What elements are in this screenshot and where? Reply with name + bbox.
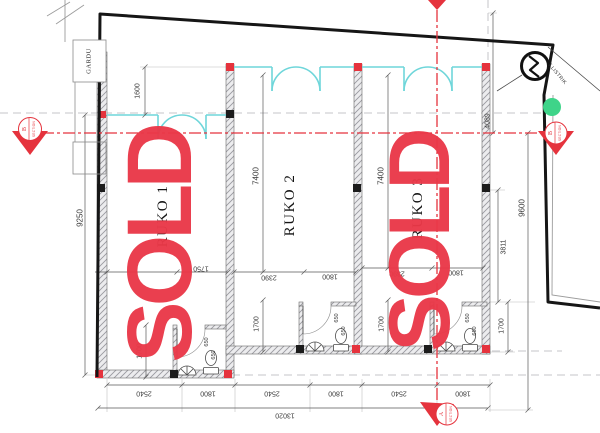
dim-right-top: 4089	[485, 113, 492, 129]
section-marker-b-left: B SECTION	[12, 118, 48, 156]
dim-fixture: 650	[334, 313, 340, 322]
sold-stamp-ruko1: SOLD	[109, 126, 211, 363]
gardu-label: GARDU	[86, 48, 93, 74]
dim-total-width: 13020	[275, 412, 295, 419]
dim-site-left: 9250	[76, 209, 85, 227]
label-ruko-2: RUKO 2	[282, 174, 298, 237]
electric-pole-label: T.LISTRIK	[546, 62, 568, 86]
dim-fixture: 650	[341, 326, 347, 335]
section-word: SECTION	[32, 120, 36, 137]
dim-storefront-offset: 1600	[135, 83, 142, 99]
section-marker-a-top	[428, 0, 446, 10]
dim-right-full: 9600	[518, 199, 527, 217]
floor-plan-screenshot: 9250 1600 1750 1700 7400 2390 1800 1700 …	[0, 0, 600, 433]
dim-bottom-5: 2540	[391, 390, 407, 397]
green-marker-dot	[543, 98, 561, 116]
dim-bottom-4: 1800	[328, 390, 344, 397]
dim-fixture: 650	[211, 350, 217, 359]
dim-bottom-2: 1800	[200, 390, 216, 397]
section-word: SECTION	[449, 405, 453, 422]
section-letter: A	[439, 411, 445, 416]
sink-icon	[306, 342, 324, 351]
dim-right-lower: 3811	[501, 239, 508, 254]
dim-r2-depth: 7400	[252, 167, 261, 185]
section-marker-a-bottom: A SECTION	[420, 402, 458, 426]
dim-bottom-6: 1800	[455, 390, 471, 397]
dim-r2-bath-height: 1700	[254, 316, 261, 332]
dim-bottom-1: 2540	[136, 390, 152, 397]
sold-stamps: SOLD SOLD	[109, 126, 468, 363]
electric-pole: T.LISTRIK	[497, 47, 600, 91]
door-swing-ruko3	[404, 67, 452, 91]
sink-icon	[178, 366, 196, 375]
section-letter: B	[548, 131, 554, 135]
door-swing-ruko2	[272, 67, 320, 91]
dim-bottom-3: 2540	[264, 390, 280, 397]
sold-stamp-ruko3: SOLD	[372, 131, 468, 352]
dim-fixture: 650	[472, 326, 478, 335]
dim-r2-shop-width: 2390	[261, 274, 277, 281]
section-word: SECTION	[558, 124, 562, 141]
section-letter: B	[22, 127, 28, 131]
electric-pole-icon	[522, 53, 549, 80]
dim-right-bath-height: 1700	[499, 318, 506, 334]
site-plan-canvas: 9250 1600 1750 1700 7400 2390 1800 1700 …	[0, 0, 600, 433]
dim-r2-bath-width: 1800	[322, 273, 338, 280]
